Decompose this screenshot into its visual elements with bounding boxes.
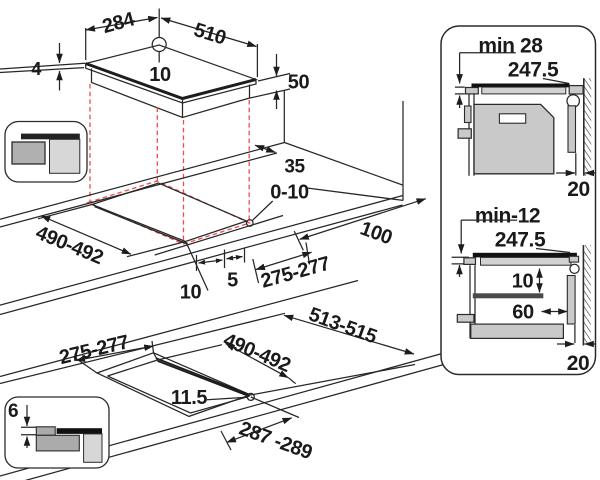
svg-text:11.5: 11.5: [171, 387, 207, 409]
svg-text:min 28: min 28: [478, 35, 543, 58]
svg-text:0-10: 0-10: [270, 182, 309, 204]
svg-text:10: 10: [512, 271, 534, 293]
svg-text:10: 10: [180, 282, 202, 304]
svg-text:35: 35: [284, 157, 305, 178]
svg-text:6: 6: [8, 401, 18, 422]
svg-text:10: 10: [149, 64, 171, 86]
svg-text:247.5: 247.5: [495, 229, 546, 252]
svg-text:5: 5: [227, 270, 238, 292]
svg-text:20: 20: [567, 178, 590, 201]
svg-text:4: 4: [31, 59, 41, 79]
svg-text:50: 50: [288, 72, 310, 94]
svg-text:60: 60: [512, 302, 534, 324]
svg-text:20: 20: [567, 352, 590, 375]
svg-text:min-12: min-12: [475, 205, 540, 228]
svg-text:247.5: 247.5: [508, 59, 559, 82]
